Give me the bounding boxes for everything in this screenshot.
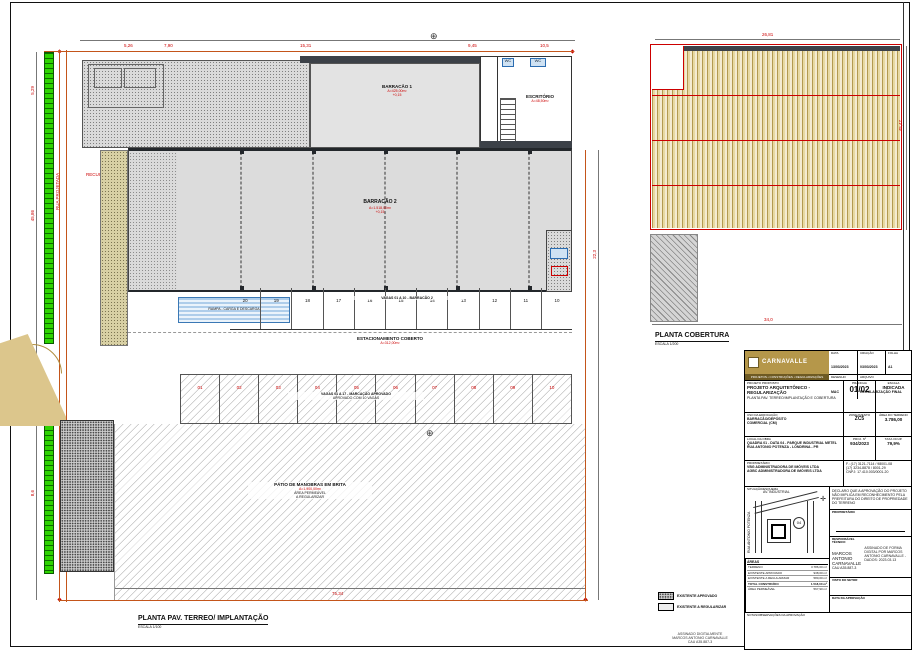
approval-box-2: DATA DA APROVAÇÃO xyxy=(830,596,911,612)
right-column: DECLARO QUE A APROVAÇÃO DO PROJETO NÃO I… xyxy=(829,487,911,612)
titleblock-header: CARNAVALLE PROJETOS • CONSTRUÇÕES • REGU… xyxy=(745,351,911,381)
office-rear-band xyxy=(480,141,572,148)
dim-text: 5,29 xyxy=(30,86,35,95)
rt-registration: CAU A35.887-3 xyxy=(832,566,864,570)
dim-text: 9,45 xyxy=(468,43,477,48)
legend-label: EXISTENTE APROVADO xyxy=(677,594,717,598)
hall-approved-portion xyxy=(129,152,177,289)
expansion-joint xyxy=(240,152,242,288)
area-label: EXISTENTE A REGULARIZAR xyxy=(748,576,789,581)
stall-number: 01 xyxy=(198,385,203,390)
notes-band: NOTAS/OBSERVAÇÕES DA APROVAÇÃO xyxy=(745,613,911,650)
room-level: +0,15 xyxy=(340,210,420,214)
office-label-group: ESCRITÓRIO A=48,50m² xyxy=(512,94,568,103)
stall-number: 09 xyxy=(510,385,515,390)
use-value: COMERCIAL (CM) xyxy=(747,421,841,425)
legend-label: EXISTENTE A REGULARIZAR xyxy=(677,605,726,609)
dim-text: 10,5 xyxy=(540,43,549,48)
dim-text: 45,47 xyxy=(898,120,903,131)
owner-cell: PROPRIETÁRIO VBG ADMINISTRADORA DE IMÓVE… xyxy=(745,461,843,486)
roof-notch xyxy=(652,46,684,90)
digital-signature-footer: ASSINADO DIGITALMENTE MARCOS ANTONIO CAR… xyxy=(640,632,760,644)
roof-sheeting xyxy=(652,46,900,228)
dim-text: 22,3 xyxy=(592,250,597,259)
stall-number: 12 xyxy=(492,298,497,303)
approval-label: VISTO DO SETOR xyxy=(832,579,909,582)
parking-stall: 13 xyxy=(447,288,478,329)
meta-value: 13/03/2023 xyxy=(831,365,849,369)
parking-stall: 18 xyxy=(291,288,322,329)
sketch-street xyxy=(807,501,814,553)
hall-side-room xyxy=(546,230,572,292)
meta-label: ARQUIVO xyxy=(860,376,909,379)
green-verge-strip-lower xyxy=(44,414,54,574)
approval-label: DATA DA APROVAÇÃO xyxy=(832,597,909,600)
rt-name: MARCOS ANTONIO xyxy=(832,551,864,561)
rt-name-group: RESPONSÁVEL TÉCNICO MARCOS ANTONIO CARNA… xyxy=(832,538,864,576)
plan-title: PLANTA PAV. TERREO/ IMPLANTAÇÃO xyxy=(138,615,268,625)
stall-number: 05 xyxy=(354,385,359,390)
project-number: 934/2023 xyxy=(846,441,873,446)
parking-stall: 16 xyxy=(354,288,385,329)
parking-stall: 08 xyxy=(454,375,493,423)
roof-plan-title-group: PLANTA COBERTURA ESCALA 1/200 xyxy=(655,332,729,346)
meta-label: CRIAÇÃO xyxy=(860,352,883,355)
site-row: LOCAL DA OBRA QUADRA 01 - DATA 04 - PARQ… xyxy=(745,437,911,461)
meta-value: 03/03/2023 xyxy=(860,365,878,369)
existing-block-lower-left xyxy=(60,420,114,572)
dim-line xyxy=(652,324,902,325)
meta-cell-folha: FOLHAA1 xyxy=(885,351,911,374)
stairs xyxy=(500,98,516,144)
barracao1-room xyxy=(310,63,480,148)
parking-stall: 11 xyxy=(510,288,541,329)
occupancy-value: 79,9% xyxy=(878,441,909,446)
area-value: 1.518,00 m² xyxy=(811,582,827,587)
meta-cell-data: DATA13/03/2023 xyxy=(829,351,857,374)
parking-stall: 20 xyxy=(230,288,260,329)
roof-gutter-line xyxy=(652,140,900,141)
stall-number: 04 xyxy=(315,385,320,390)
scale-value: INDICADA xyxy=(878,385,909,390)
dim-text: 8,6 xyxy=(30,490,35,496)
legend-swatch-regularize xyxy=(658,603,674,611)
cnpj-line: CNPJ: 17.410.003/0001-20 xyxy=(846,470,909,474)
stall-number: 03 xyxy=(276,385,281,390)
area-value: 938,00 m² xyxy=(813,571,827,576)
area-value: 580,00 m² xyxy=(813,576,827,581)
inner-room-outline xyxy=(94,68,122,88)
logo-box: CARNAVALLE PROJETOS • CONSTRUÇÕES • REGU… xyxy=(745,351,829,380)
project-row: PROJETO PROPOSTO PROJETO ARQUITETÔNICO -… xyxy=(745,381,911,413)
roof-gutter-line xyxy=(652,185,900,186)
occupancy-cell: TAXA OCUP. 79,9% xyxy=(875,437,911,460)
zoning-value: ZC5 xyxy=(846,417,873,423)
label-line: A REGULARIZAR xyxy=(248,495,372,499)
owner-signature-box: PROPRIETÁRIO xyxy=(830,510,911,537)
bottom-section: SITUAÇÃO/ESQUEMA 04 ✛ RUA ANTONIO POTENZ… xyxy=(745,487,911,613)
sketch-street-name: AV. INDUSTRIAL xyxy=(763,490,790,494)
sheet-number: 01/02 xyxy=(846,385,873,394)
sketch-north-icon: ✛ xyxy=(820,495,826,503)
project-title: PROJETO ARQUITETÔNICO - REGULARIZAÇÃO xyxy=(747,385,841,395)
parking-stall: 10 xyxy=(532,375,571,423)
title-block: CARNAVALLE PROJETOS • CONSTRUÇÕES • REGU… xyxy=(744,350,912,650)
room-area: A=48,50m² xyxy=(512,99,568,103)
plan-scale: ESCALA 1/200 xyxy=(655,342,729,346)
dim-line xyxy=(80,40,575,41)
dim-text: 15,31 xyxy=(300,43,311,48)
sketch-street-name: RUA ANTONIO POTENZA xyxy=(747,509,751,553)
stall-number: 18 xyxy=(305,298,310,303)
stall-number: 11 xyxy=(523,298,528,303)
barracao1-label-group: BARRACÃO 1 A=425,00m² +0,15 xyxy=(365,84,429,97)
street-label: RUA PROJETADA xyxy=(55,150,60,210)
dim-line xyxy=(598,150,599,600)
areas-table: ÁREAS TERRENO3.786,00 m² EXISTENTE APROV… xyxy=(745,559,829,612)
wc-label: WC xyxy=(505,58,512,63)
notes-label: NOTAS/OBSERVAÇÕES DA APROVAÇÃO xyxy=(747,614,909,617)
wc-label: WC xyxy=(535,58,542,63)
parking-stall: 12 xyxy=(479,288,510,329)
meta-label: FOLHA xyxy=(888,352,909,355)
site-line: RUA ANTONIO POTENZA - LONDRINA - PR xyxy=(747,445,841,449)
logo-subtitle: PROJETOS • CONSTRUÇÕES • REGULARIZAÇÕES xyxy=(745,374,829,380)
main-plan-title-group: PLANTA PAV. TERREO/ IMPLANTAÇÃO ESCALA 1… xyxy=(138,615,268,629)
wc-box: WC xyxy=(530,58,546,67)
parking-stall: 09 xyxy=(493,375,532,423)
meta-value: A1 xyxy=(888,365,892,369)
approval-box-1: VISTO DO SETOR xyxy=(830,578,911,596)
project-cell: PROJETO PROPOSTO PROJETO ARQUITETÔNICO -… xyxy=(745,381,843,412)
aisle-dashed-line xyxy=(128,332,572,333)
room-level: +0,15 xyxy=(365,93,429,97)
stall-number: 08 xyxy=(471,385,476,390)
parking-stall: 17 xyxy=(323,288,354,329)
plan-scale: ESCALA 1/100 xyxy=(138,625,268,629)
office-wall xyxy=(497,56,498,148)
signature-label: PROPRIETÁRIO xyxy=(832,511,909,514)
area-label: TOTAL CONSTRUÍDO xyxy=(748,582,779,587)
wc-box: WC xyxy=(502,58,514,67)
dim-text: 34,0 xyxy=(764,317,773,322)
parking-stall: 10 xyxy=(541,288,572,329)
dim-line xyxy=(36,52,37,600)
stall-number: 19 xyxy=(274,298,279,303)
front-wall-band xyxy=(300,56,480,63)
expansion-joint xyxy=(312,152,314,288)
signature-label: RESPONSÁVEL TÉCNICO xyxy=(832,538,864,545)
parking-row2-label-group: VAGAS 01 A 17 - MARCAÇÃO APROVADO APROVA… xyxy=(288,392,424,400)
footer-line: CAU A35.887-3 xyxy=(640,640,760,644)
expansion-joint xyxy=(456,152,458,288)
green-verge-strip-upper xyxy=(44,52,54,344)
rt-signature-box: RESPONSÁVEL TÉCNICO MARCOS ANTONIO CARNA… xyxy=(830,537,911,578)
sketch-lot-number: 04 xyxy=(793,517,805,529)
parking-stall: 19 xyxy=(260,288,291,329)
owner-row: PROPRIETÁRIO VBG ADMINISTRADORA DE IMÓVE… xyxy=(745,461,911,487)
meta-label: DESENHO xyxy=(831,376,855,379)
property-line xyxy=(60,600,588,601)
left-column: SITUAÇÃO/ESQUEMA 04 ✛ RUA ANTONIO POTENZ… xyxy=(745,487,829,612)
stall-number: 17 xyxy=(336,298,341,303)
expansion-joint xyxy=(384,152,386,288)
roof-annex-block xyxy=(650,234,698,322)
stall-number: 10 xyxy=(549,385,554,390)
lot-area-cell: ÁREA DO TERRENO 3.786,00 xyxy=(875,413,911,436)
logo-text: CARNAVALLE xyxy=(762,359,807,366)
yard-label-group: PÁTIO DE MANOBRAS EM BRITA A=1.900,00m² … xyxy=(248,482,372,499)
area-label: ÁREA PERMEÁVEL xyxy=(748,587,775,592)
meta-cell-criacao: CRIAÇÃO03/03/2023 xyxy=(857,351,885,374)
dim-text: 45,86 xyxy=(30,210,35,221)
parking-stall: 15 xyxy=(385,288,416,329)
stall-number: 20 xyxy=(243,298,248,303)
north-arrow-icon: ⊕ xyxy=(426,428,434,439)
site-cell: LOCAL DA OBRA QUADRA 01 - DATA 04 - PARQ… xyxy=(745,437,843,460)
prancha-cell: PRANCHA 01/02 xyxy=(843,381,875,412)
north-arrow-icon: ⊕ xyxy=(430,31,438,42)
roof-gutter-line xyxy=(652,95,900,96)
escala-cell: ESCALA INDICADA xyxy=(875,381,911,412)
use-cell: USO DA EDIFICAÇÃO BARRACÃO/DEPÓSITO COME… xyxy=(745,413,843,436)
use-row: USO DA EDIFICAÇÃO BARRACÃO/DEPÓSITO COME… xyxy=(745,413,911,437)
sketch-lot-highlight xyxy=(771,524,786,539)
digital-stamp-text: ASSINADO DE FORMA DIGITAL POR MARCOS ANT… xyxy=(864,538,909,576)
dim-line xyxy=(906,46,907,230)
project-number-cell: PROJ. Nº 934/2023 xyxy=(843,437,875,460)
architectural-drawing-sheet: 5,26 7,90 15,31 9,45 10,5 5,29 45,86 8,6… xyxy=(0,0,915,650)
meta-label: DATA xyxy=(831,352,855,355)
red-equipment-box xyxy=(551,266,568,276)
situation-sketch: SITUAÇÃO/ESQUEMA 04 ✛ RUA ANTONIO POTENZ… xyxy=(745,487,829,559)
dim-line xyxy=(655,39,900,40)
signature-line xyxy=(836,531,905,532)
barracao2-label-group: BARRACÃO 2 A=1.518,00m² +0,15 xyxy=(340,200,420,214)
reservoir-box xyxy=(550,248,568,259)
dim-text: 7,90 xyxy=(164,43,173,48)
project-subtitle: PLANTA PAV. TERREO/IMPLANTAÇÃO E COBERTU… xyxy=(747,396,841,400)
dim-text: 26,81 xyxy=(762,32,773,37)
area-value: 567,90 m² xyxy=(813,587,827,592)
stall-number: 10 xyxy=(554,298,559,303)
legend-swatch-approved xyxy=(658,592,674,600)
stall-number: 02 xyxy=(237,385,242,390)
parking-stall: 01 xyxy=(181,375,219,423)
dim-text: 5,26 xyxy=(124,43,133,48)
plan-title: PLANTA COBERTURA xyxy=(655,332,729,342)
barracao2-hall xyxy=(128,148,572,292)
area-value: A=312,00m² xyxy=(340,341,440,345)
roof-ridge-band xyxy=(684,46,900,51)
meta-grid: DATA13/03/2023 CRIAÇÃO03/03/2023 FOLHAA1… xyxy=(829,351,911,380)
side-yard-strip xyxy=(100,150,128,346)
expansion-joint xyxy=(528,152,530,288)
area-label: TERRENO xyxy=(748,565,763,570)
lot-area-value: 3.786,00 xyxy=(878,417,909,422)
declaration-text: DECLARO QUE A APROVAÇÃO DO PROJETO NÃO I… xyxy=(830,487,911,510)
parking-stall: 02 xyxy=(219,375,258,423)
parking-row-1: 20 19 18 17 16 15 14 13 12 11 10 xyxy=(230,288,572,330)
owner-line: AGBC ADMINISTRADORA DE IMÓVEIS LTDA xyxy=(747,469,841,473)
stall-number: 06 xyxy=(393,385,398,390)
parking-stall: 14 xyxy=(416,288,447,329)
area-value: 3.786,00 m² xyxy=(811,565,827,570)
label-line: APROVADO COM 10 VAGAS xyxy=(288,396,424,400)
logo-icon xyxy=(748,357,759,368)
stall-number: 07 xyxy=(432,385,437,390)
contact-cell: F.: (17) 3121-7114 / 98001-08 (17) 3234-… xyxy=(843,461,911,486)
inner-room-outline xyxy=(124,68,156,88)
zoning-cell: ZONEAMENTO ZC5 xyxy=(843,413,875,436)
sketch-street xyxy=(755,501,762,553)
area-row: ÁREA PERMEÁVEL567,90 m² xyxy=(747,587,828,592)
rear-yard xyxy=(114,424,586,600)
property-line xyxy=(44,51,574,52)
parking-row1-label: VAGAS 01 A 10 - BARRACÃO 2 xyxy=(350,296,464,300)
covered-parking-label-group: ESTACIONAMENTO COBERTO A=312,00m² xyxy=(340,336,440,345)
area-label: EXISTENTE APROVADO xyxy=(748,571,782,576)
